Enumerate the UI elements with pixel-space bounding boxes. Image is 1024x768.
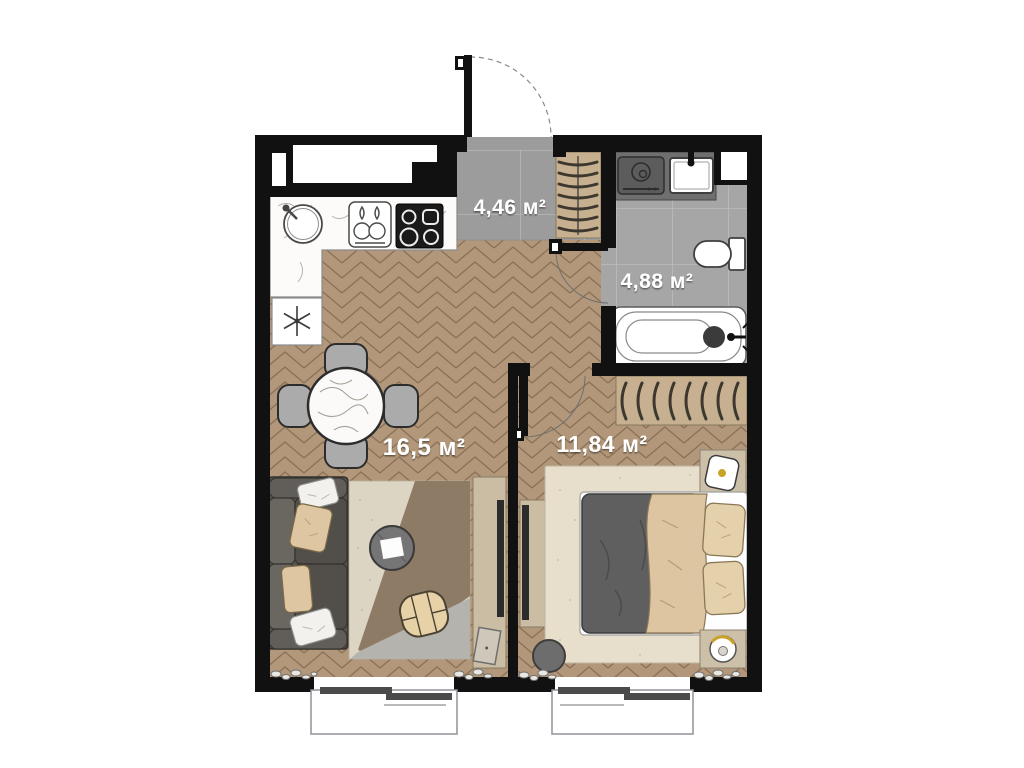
window-sash	[386, 693, 452, 700]
window-sash	[624, 693, 690, 700]
toilet-bowl	[694, 241, 731, 267]
washing-machine	[618, 157, 664, 194]
sofa	[268, 477, 348, 649]
window-sash	[558, 687, 630, 694]
wall-bedroom-door-stub	[508, 363, 530, 376]
toilet	[694, 238, 745, 270]
room-label-bathroom: 4,88 м²	[621, 270, 694, 293]
stool	[533, 640, 565, 672]
gas-hob	[349, 202, 391, 247]
niche-window	[293, 145, 412, 183]
nightstand-top	[700, 450, 746, 497]
induction-cooktop	[396, 204, 443, 248]
drain	[703, 326, 725, 348]
refrigerator	[272, 298, 322, 345]
shaft-opening	[721, 152, 747, 180]
entrance-door	[455, 55, 551, 137]
floor-plan: 4,46 м² 4,88 м² 16,5 м² 11,84 м²	[0, 0, 1024, 768]
wall-right	[747, 135, 762, 692]
door-leaf	[556, 243, 608, 251]
coffee-table	[370, 526, 414, 570]
door-leaf	[519, 376, 528, 436]
wall-bathroom-left-upper	[601, 152, 616, 248]
window-bedroom	[552, 677, 693, 734]
wardrobe-bedroom	[616, 376, 747, 425]
back-cushion	[269, 498, 295, 564]
wall-partition	[508, 376, 518, 677]
room-label-hall: 4,46 м²	[474, 196, 547, 219]
niche-left	[272, 153, 286, 186]
wall-hinge-stub	[553, 150, 566, 157]
room-label-bedroom: 11,84 м²	[556, 431, 647, 457]
window-living	[311, 677, 457, 734]
dining-table	[308, 368, 384, 444]
wall-bathroom-left-lower	[601, 306, 616, 363]
pillow	[702, 503, 746, 558]
wall-top-right	[553, 135, 762, 152]
room-label-living: 16,5 м²	[383, 434, 466, 461]
wall-bathroom-bottom	[592, 363, 762, 376]
nightstand-bottom	[700, 630, 746, 668]
living-rug	[349, 481, 470, 659]
tv-living	[497, 500, 504, 617]
wardrobe-hall	[556, 152, 601, 238]
pillow	[703, 561, 746, 615]
kitchen-sink	[283, 205, 323, 244]
wall-left	[255, 135, 270, 692]
lamp	[704, 454, 740, 492]
niche-step	[412, 145, 437, 162]
entry-threshold	[467, 137, 553, 152]
tray	[379, 536, 404, 560]
wall-door-jamb	[457, 135, 467, 152]
floor-plan-canvas: 4,46 м² 4,88 м² 16,5 м² 11,84 м²	[0, 0, 1024, 768]
door-swing-arc	[470, 57, 551, 137]
blanket	[646, 494, 707, 633]
chair	[384, 385, 418, 427]
bathtub	[611, 307, 748, 366]
bed	[580, 492, 747, 635]
tv-bedroom	[522, 505, 529, 620]
window-sash	[320, 687, 392, 694]
pillow	[281, 565, 313, 613]
lamp	[710, 636, 736, 662]
